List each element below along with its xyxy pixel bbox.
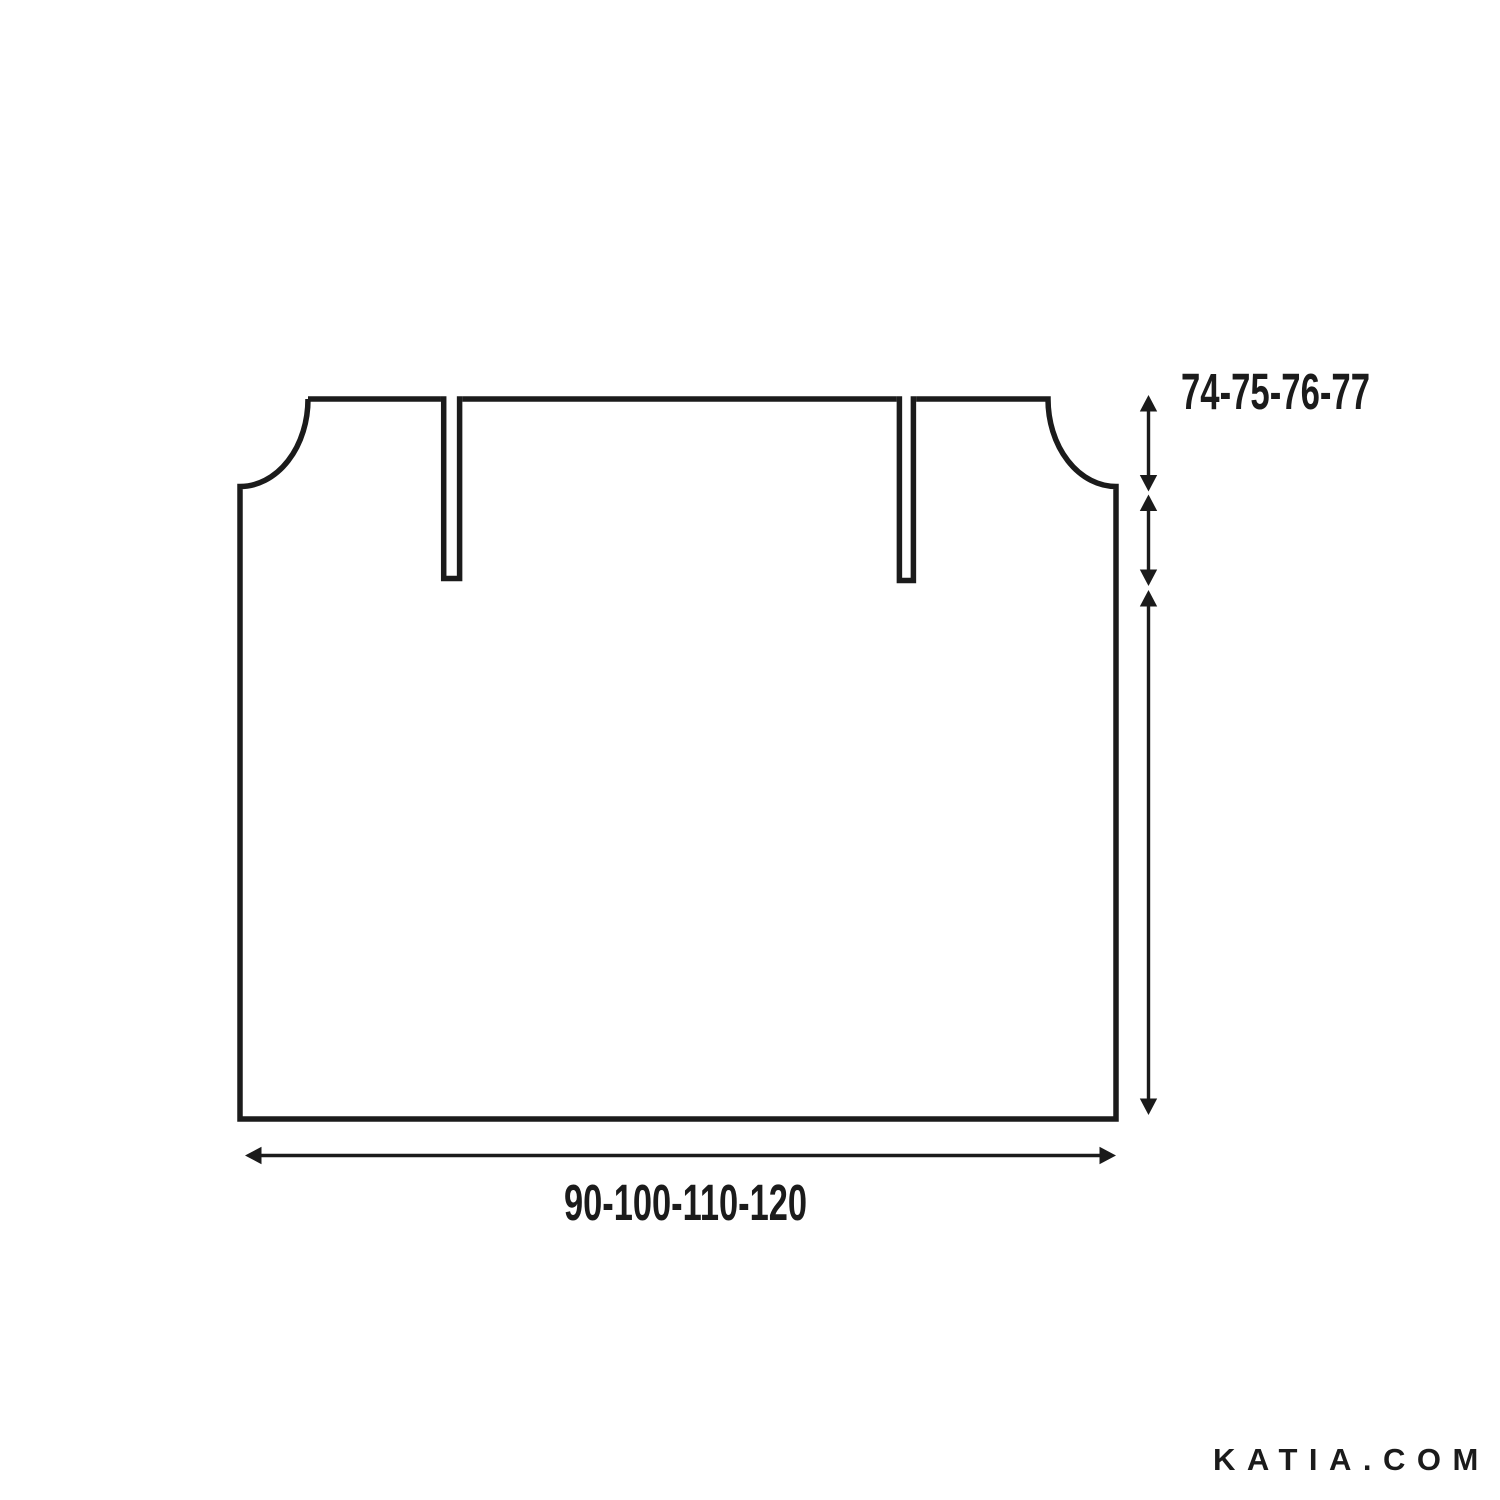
svg-text:KATIA.COM: KATIA.COM [1213,1442,1490,1477]
svg-text:74-75-76-77: 74-75-76-77 [1181,363,1370,420]
svg-text:90-100-110-120: 90-100-110-120 [564,1174,807,1231]
